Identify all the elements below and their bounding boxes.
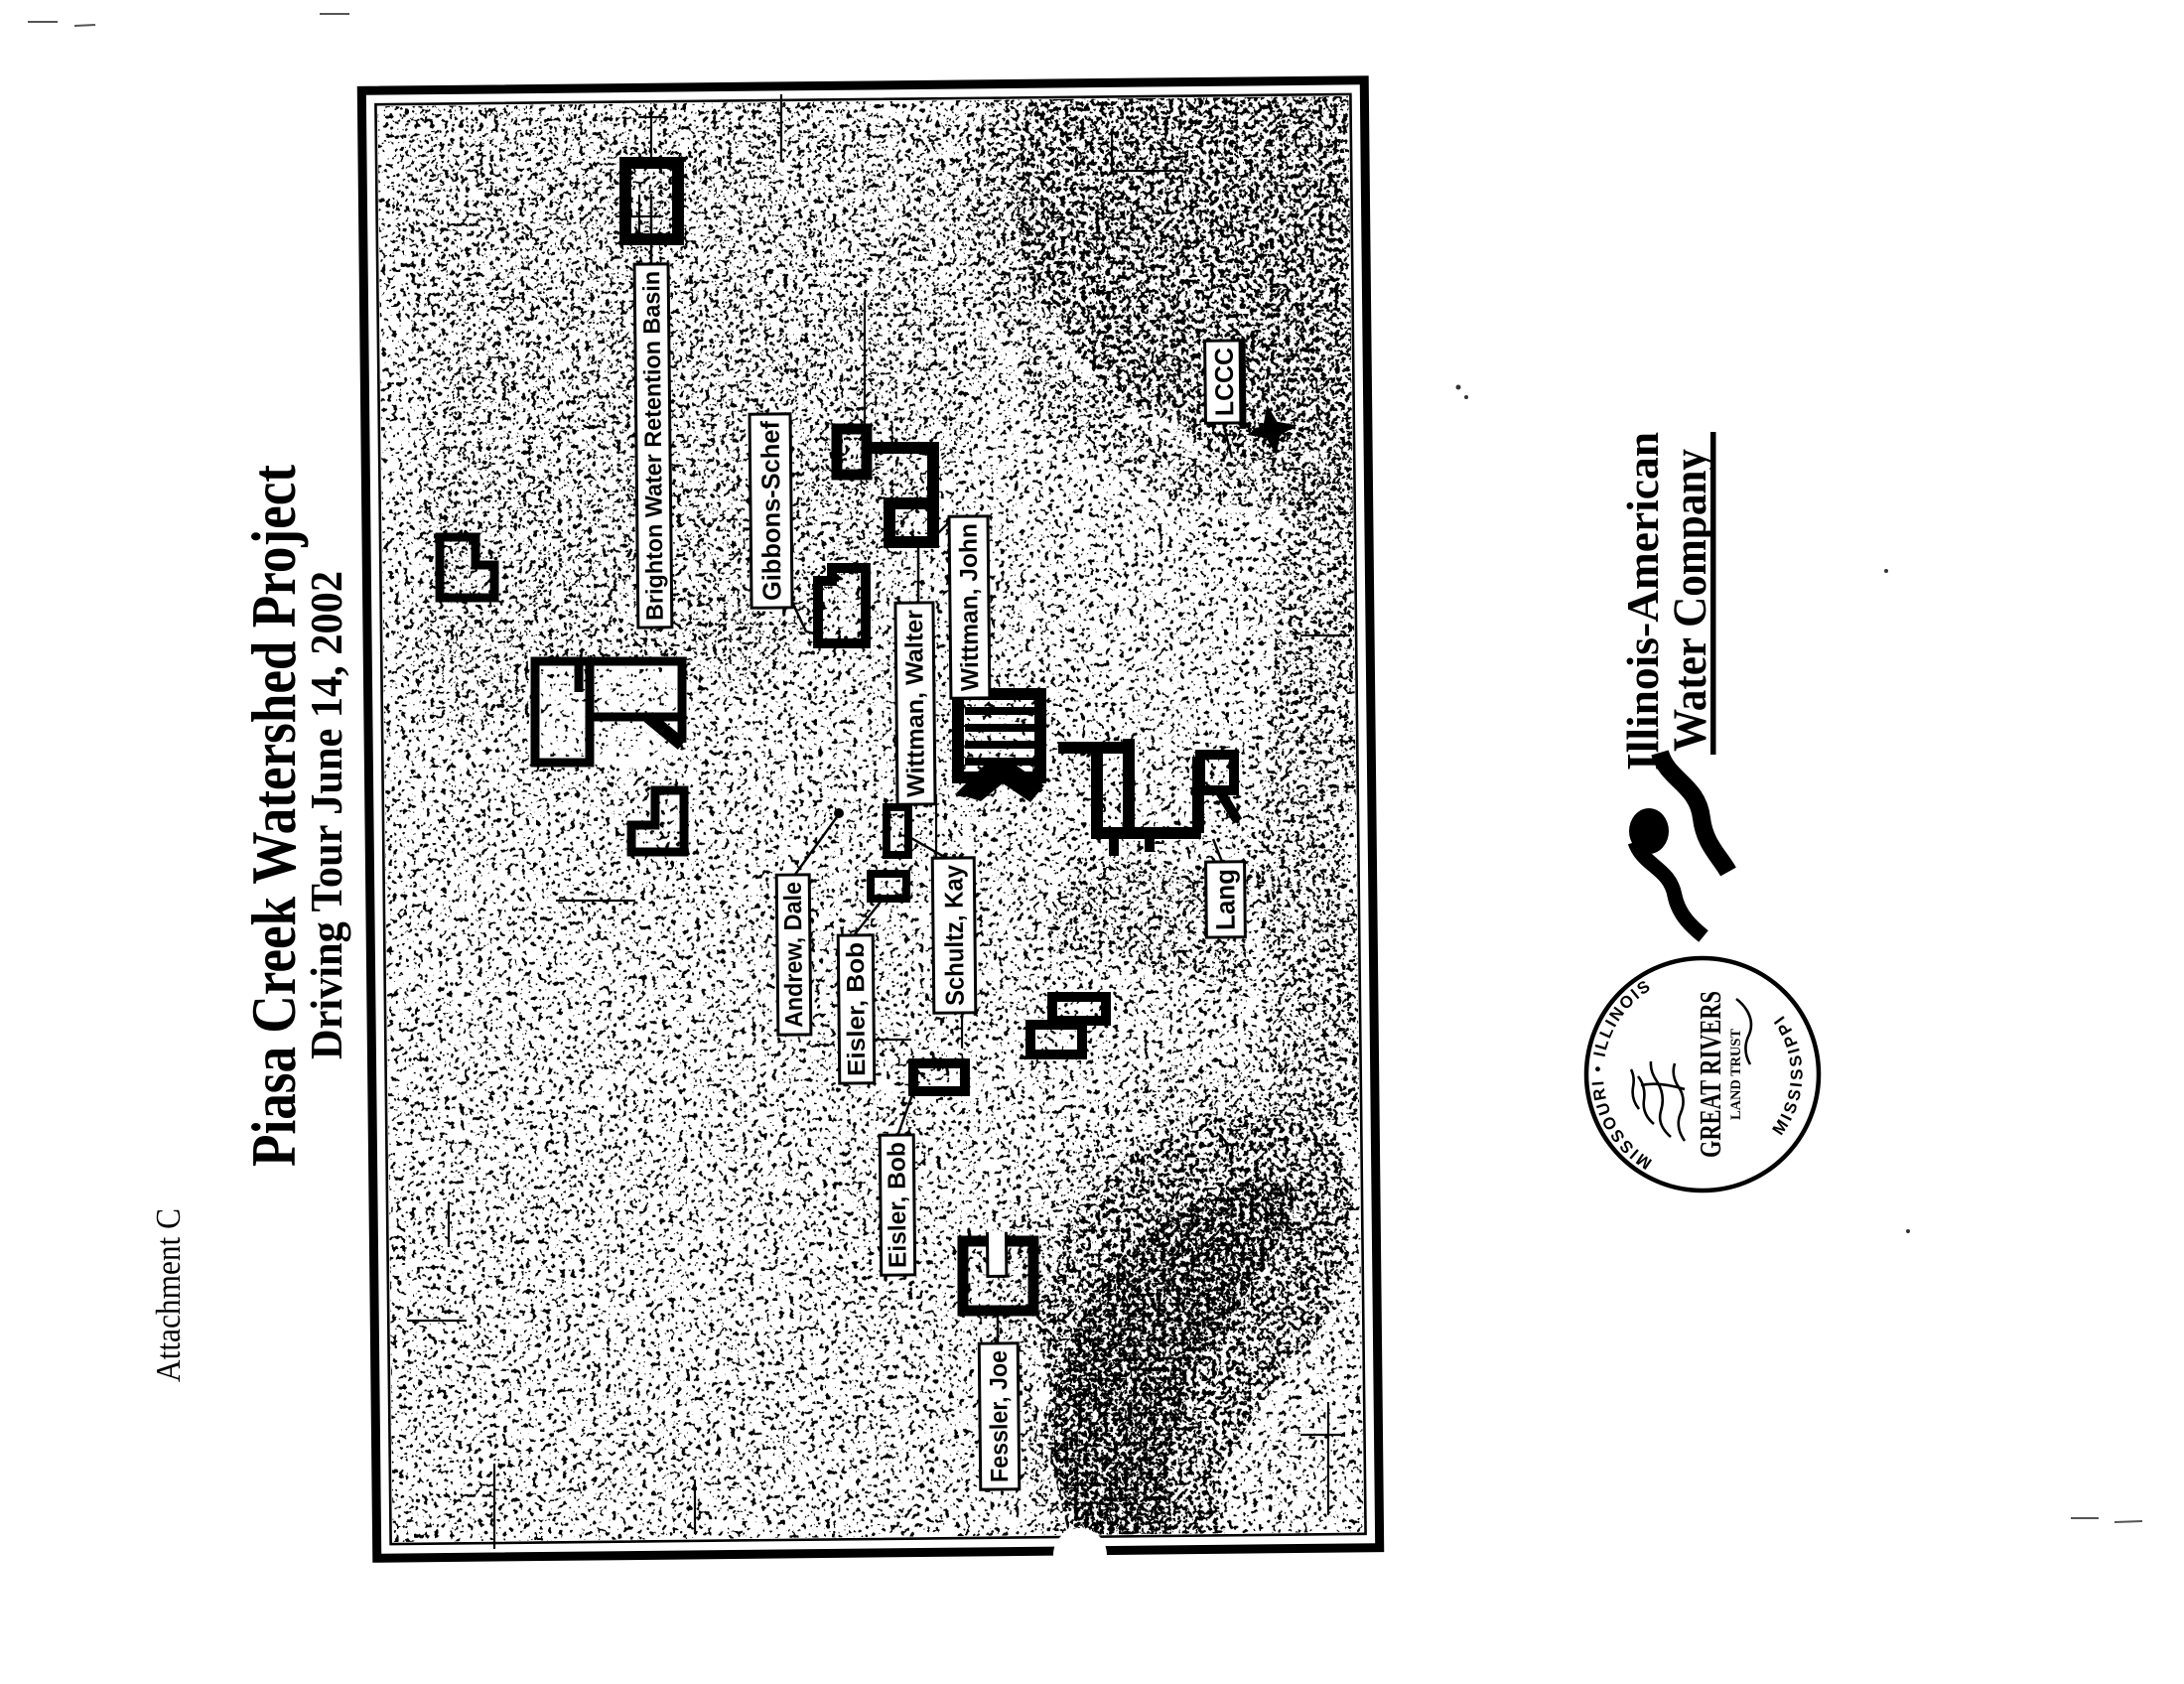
svg-text:Brighton Water Retention Basin: Brighton Water Retention Basin (638, 271, 669, 621)
svg-text:Attachment C: Attachment C (149, 1208, 188, 1382)
svg-text:Eisler, Bob: Eisler, Bob (842, 942, 871, 1076)
svg-text:Driving Tour June 14, 2002: Driving Tour June 14, 2002 (301, 571, 351, 1059)
svg-text:Water Company: Water Company (1664, 449, 1716, 752)
svg-text:Schultz, Kay: Schultz, Kay (938, 864, 969, 1006)
svg-text:Wittman, John: Wittman, John (955, 523, 985, 691)
svg-text:Andrew, Dale: Andrew, Dale (779, 882, 809, 1028)
svg-text:Piasa Creek Watershed Project: Piasa Creek Watershed Project (238, 464, 309, 1167)
svg-text:GREAT RIVERS: GREAT RIVERS (1693, 991, 1727, 1158)
svg-text:Gibbons-Schef: Gibbons-Schef (755, 421, 787, 602)
svg-text:Illinois-American: Illinois-American (1617, 432, 1668, 771)
svg-text:Fessler, Joe: Fessler, Joe (985, 1350, 1014, 1482)
svg-text:Eisler, Bob: Eisler, Bob (883, 1142, 911, 1268)
svg-text:Wittman, Walter: Wittman, Walter (900, 610, 930, 798)
svg-text:LCCC: LCCC (1209, 348, 1240, 417)
svg-text:LAND TRUST: LAND TRUST (1728, 1029, 1744, 1120)
svg-text:Lang: Lang (1210, 869, 1241, 930)
